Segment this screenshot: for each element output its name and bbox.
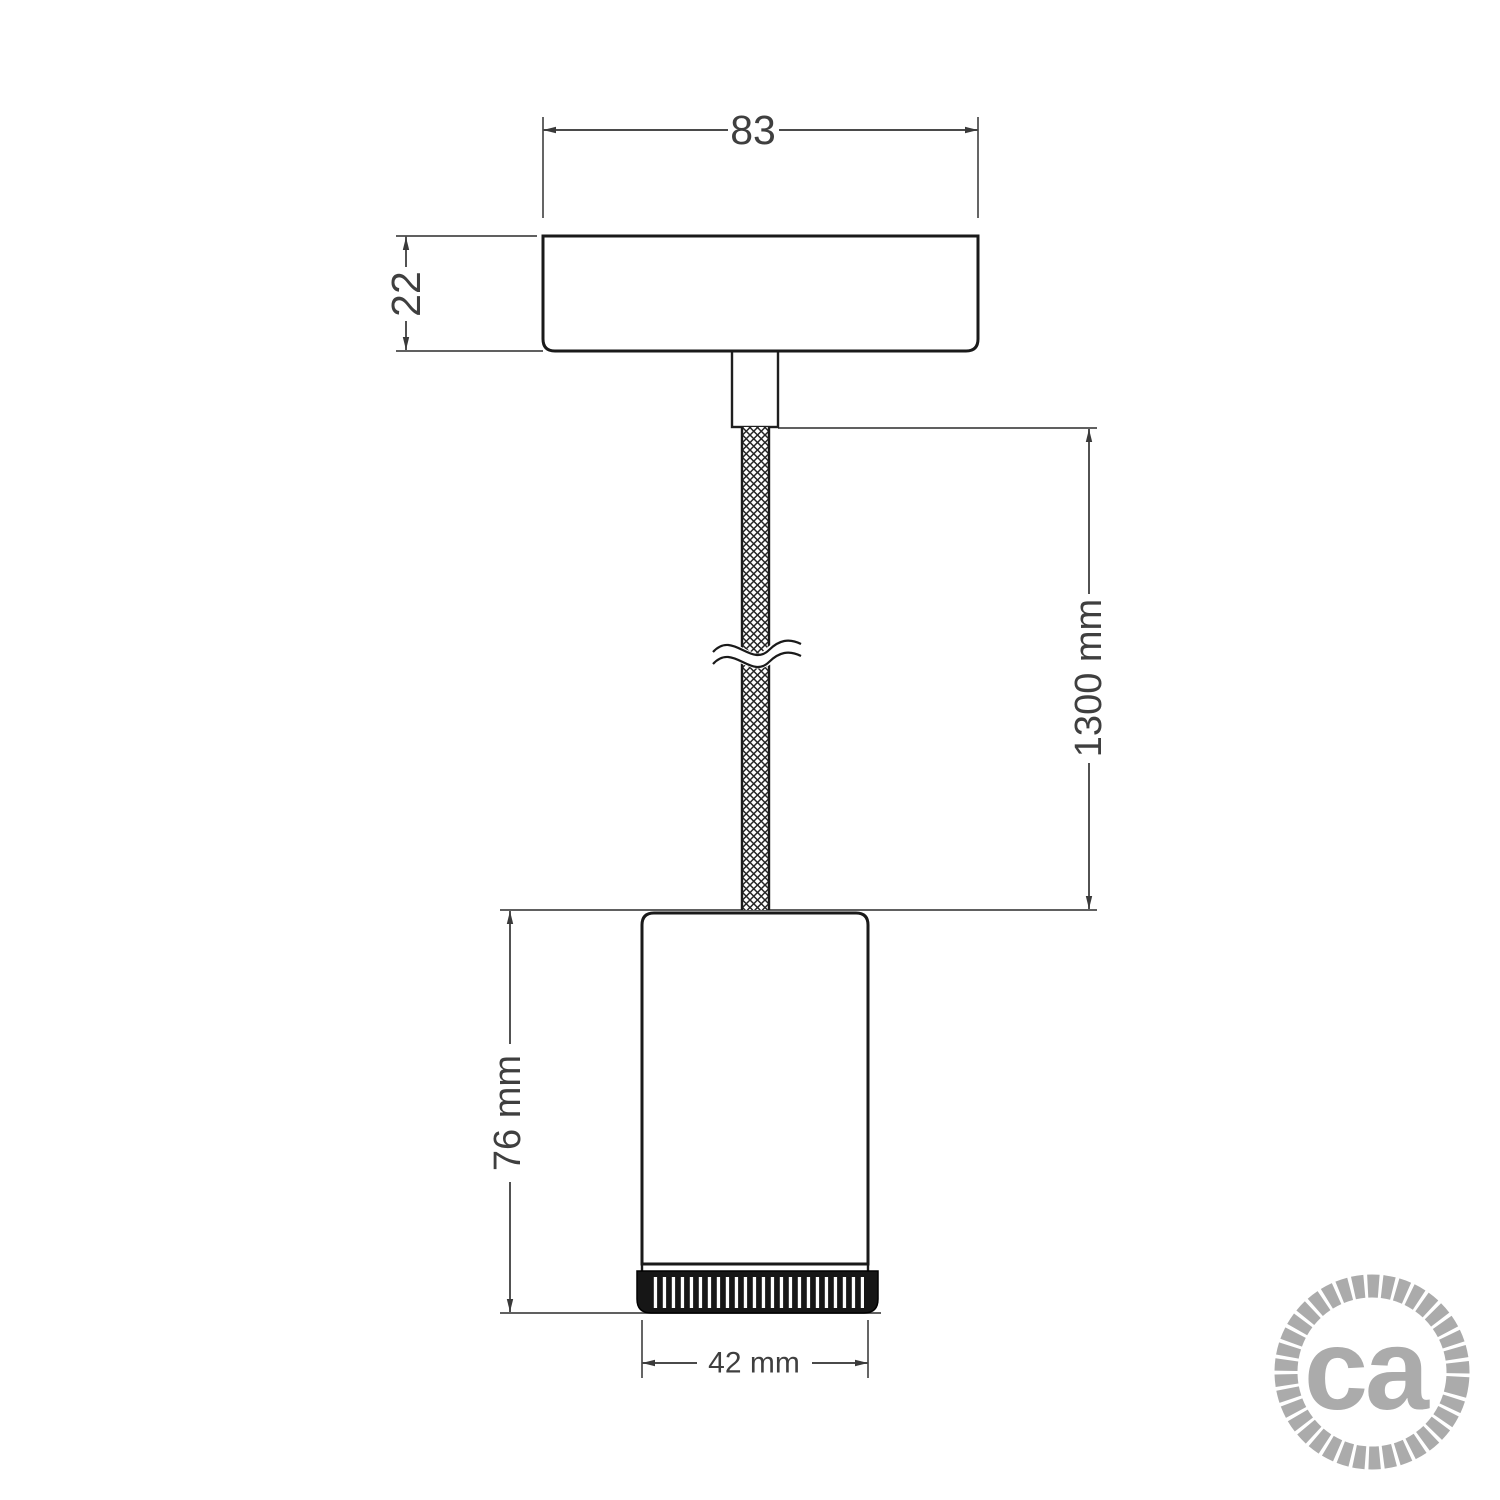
ceiling-canopy	[543, 236, 978, 351]
dim-cable-length-label: 1300 mm	[1068, 599, 1110, 757]
knurled-ring	[637, 1271, 878, 1313]
dim-canopy-height-label: 22	[383, 271, 429, 317]
dim-spotlight-diameter-label: 42 mm	[708, 1347, 800, 1380]
brand-logo-text: ca	[1304, 1306, 1430, 1434]
dim-spotlight-height-label: 76 mm	[487, 1055, 529, 1171]
technical-drawing-canvas: 83 22 1300 mm 76 mm 42 mm ca	[0, 0, 1500, 1500]
dim-canopy-width-label: 83	[730, 107, 776, 153]
spotlight-body	[642, 913, 868, 1264]
strain-relief-stem	[732, 351, 778, 427]
